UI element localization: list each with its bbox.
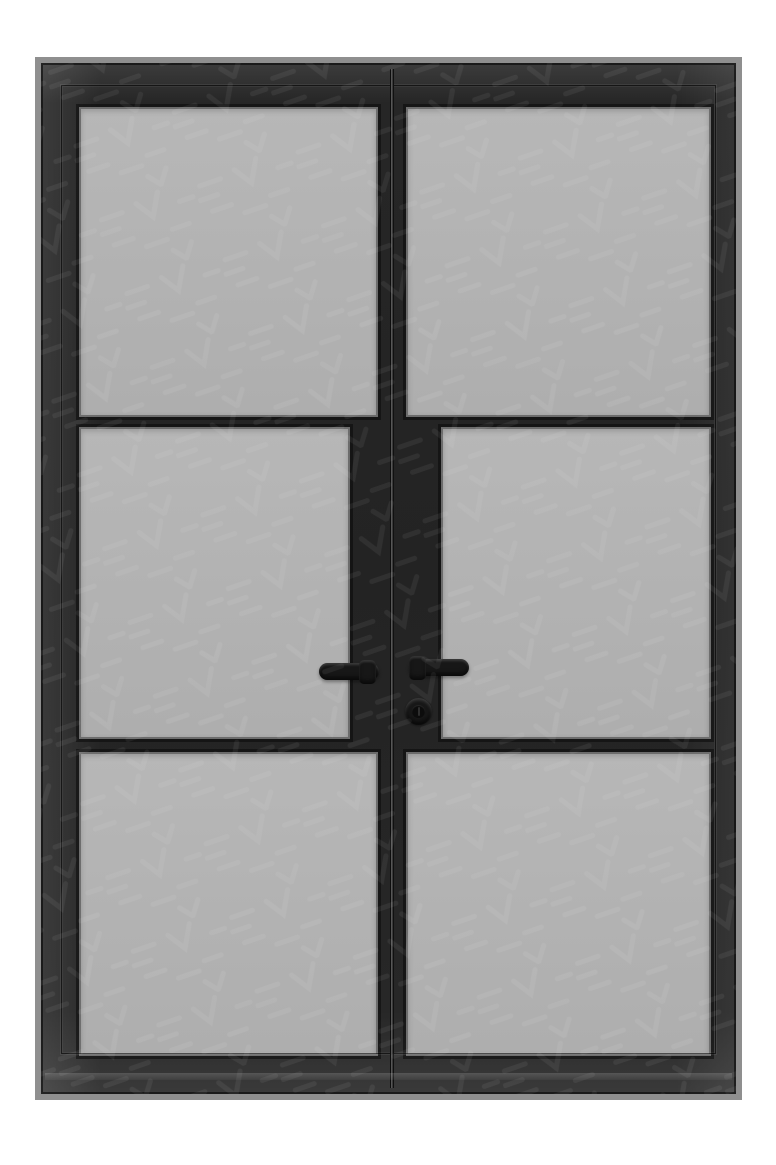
left-handle-base: [359, 660, 376, 684]
glass-pane-left-middle: [81, 429, 348, 737]
keyhole-icon: [412, 705, 425, 718]
key-cylinder: [405, 698, 432, 725]
right-handle-base: [409, 656, 426, 680]
door-leaf-seam: [390, 69, 394, 1088]
threshold-highlight: [45, 1073, 732, 1080]
glass-pane-right-top: [408, 109, 709, 415]
glass-pane-left-bottom: [81, 754, 376, 1054]
keyhole-slot: [418, 707, 420, 716]
glass-pane-right-bottom: [408, 754, 709, 1054]
steel-double-door: [35, 57, 742, 1100]
product-photo-stage: [0, 0, 776, 1165]
glass-pane-left-top: [81, 109, 376, 415]
glass-pane-right-middle: [443, 429, 709, 737]
